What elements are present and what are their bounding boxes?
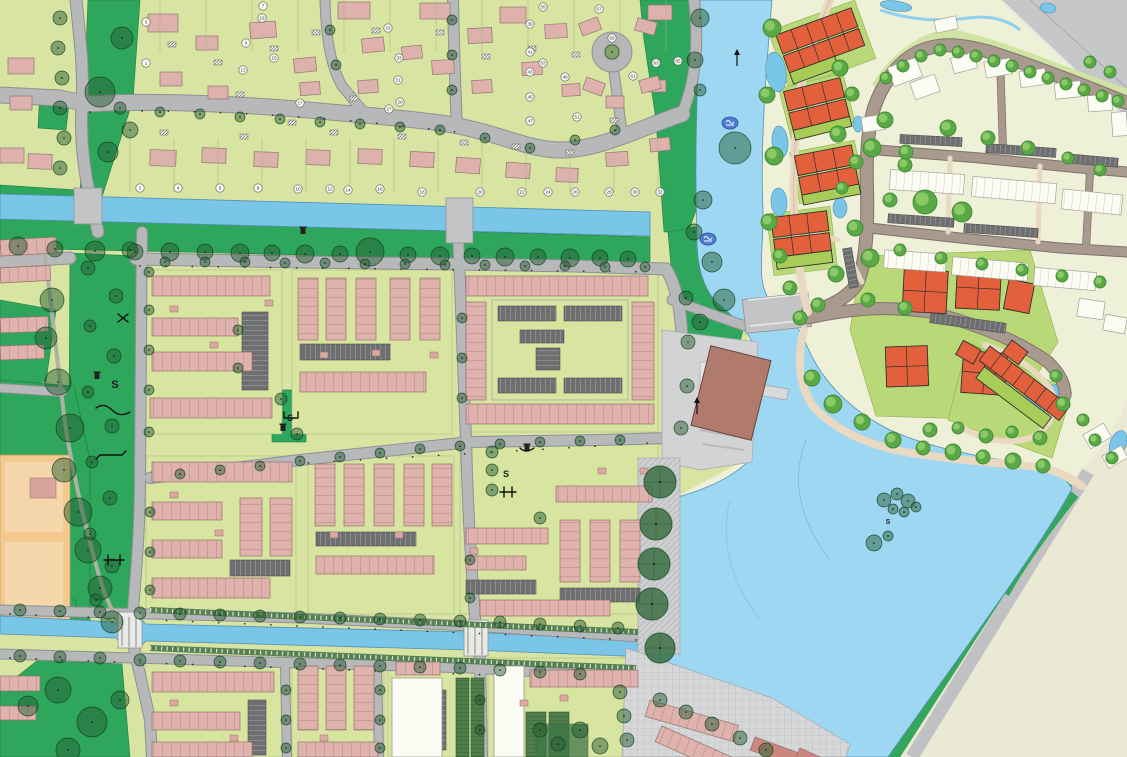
garden-shed <box>210 342 218 348</box>
svg-text:26: 26 <box>572 190 578 195</box>
tree-icon <box>375 685 385 695</box>
tree-icon <box>454 615 466 627</box>
garden-shed <box>170 492 178 498</box>
parking-marking <box>312 30 320 35</box>
tree-icon <box>457 393 467 403</box>
house <box>401 45 422 60</box>
parking-marking <box>610 118 618 123</box>
tree-icon <box>155 107 165 117</box>
svg-text:59: 59 <box>609 36 615 41</box>
tree-icon <box>82 386 94 398</box>
svg-text:33: 33 <box>396 56 402 61</box>
tree-icon <box>759 87 775 103</box>
tree-icon <box>894 244 906 256</box>
tree-icon <box>793 311 807 325</box>
tree-icon <box>53 161 67 175</box>
tree-icon <box>885 432 901 448</box>
tree-icon <box>988 55 1000 67</box>
plot-number: 53 <box>539 59 547 67</box>
tree-icon <box>534 512 546 524</box>
svg-text:9: 9 <box>245 41 248 46</box>
tree-icon <box>1042 72 1054 84</box>
tree-icon <box>360 259 370 269</box>
tree-icon <box>640 262 650 272</box>
plot-number: 17 <box>296 99 304 107</box>
tree-icon <box>686 224 702 240</box>
tree-icon <box>35 327 57 349</box>
tree-icon <box>414 614 426 626</box>
svg-text:16: 16 <box>377 187 383 192</box>
tree-icon <box>979 429 993 443</box>
tree-icon <box>694 84 706 96</box>
parking-marking <box>270 46 278 51</box>
tree-icon <box>679 705 693 719</box>
tree-icon <box>1016 264 1028 276</box>
plot-number: 10 <box>294 185 302 193</box>
plot-number: 12 <box>326 185 334 193</box>
tree-icon <box>315 117 325 127</box>
house <box>420 3 450 19</box>
tree-icon <box>494 616 506 628</box>
svg-text:32: 32 <box>657 190 663 195</box>
plot-number: 49 <box>561 73 569 81</box>
tree-icon <box>94 606 106 618</box>
plot-number: 2 <box>136 184 144 192</box>
garden-shed <box>320 735 328 741</box>
house <box>545 23 568 38</box>
house <box>456 157 481 174</box>
tree-icon <box>85 77 115 107</box>
tree-icon <box>215 465 225 475</box>
tree-icon <box>534 618 546 630</box>
tree-icon <box>494 664 506 676</box>
plot-number: 33 <box>395 54 403 62</box>
tree-icon <box>447 50 457 60</box>
svg-text:15: 15 <box>271 56 277 61</box>
parking-marking <box>350 96 358 101</box>
tree-icon <box>98 142 118 162</box>
tree-icon <box>861 293 875 307</box>
tree-icon <box>1024 66 1036 78</box>
tree-icon <box>1036 459 1050 473</box>
plot-number: 14 <box>344 186 352 194</box>
svg-text:12: 12 <box>327 187 333 192</box>
tree-icon <box>551 737 565 751</box>
svg-text:30: 30 <box>632 190 638 195</box>
plot-number: 65 <box>674 57 682 65</box>
parking-marking <box>398 134 406 139</box>
plot-number: 18 <box>418 188 426 196</box>
garden-shed <box>372 350 380 356</box>
svg-text:43: 43 <box>527 70 533 75</box>
house <box>606 96 624 108</box>
svg-text:61: 61 <box>630 74 636 79</box>
tree-icon <box>759 743 773 757</box>
house <box>28 154 53 170</box>
promenade-tree-icon <box>636 588 668 620</box>
svg-text:23: 23 <box>385 26 391 31</box>
tree-icon <box>294 611 306 623</box>
tree-icon <box>334 612 346 624</box>
tree-icon <box>480 133 490 143</box>
tree-icon <box>291 428 303 440</box>
plot-number: 22 <box>518 188 526 196</box>
tree-icon <box>713 289 735 311</box>
tree-icon <box>763 19 781 37</box>
plot-number: 23 <box>384 24 392 32</box>
tree-icon <box>592 738 608 754</box>
tree-icon <box>705 717 719 731</box>
masterplan-svg: SSSS319131571917233331292724681012141618… <box>0 0 1127 757</box>
bin-icon <box>300 227 307 235</box>
plot-number: 59 <box>608 34 616 42</box>
svg-text:14: 14 <box>345 188 351 193</box>
house <box>0 148 24 163</box>
tree-icon <box>281 743 291 753</box>
tree-icon <box>804 370 820 386</box>
tree-icon <box>877 112 893 128</box>
house <box>249 21 276 39</box>
tree-icon <box>832 60 848 76</box>
promenade-tree-icon <box>645 633 675 663</box>
svg-text:51: 51 <box>574 115 580 120</box>
tree-icon <box>134 607 146 619</box>
tree-icon <box>375 448 385 458</box>
tree-icon <box>1094 276 1106 288</box>
tree-icon <box>175 469 185 479</box>
svg-text:1: 1 <box>145 61 148 66</box>
tree-icon <box>414 661 426 673</box>
tree-icon <box>56 414 84 442</box>
house <box>293 57 316 73</box>
garden-shed <box>215 530 223 536</box>
tree-icon <box>84 320 96 332</box>
tree-icon <box>534 666 546 678</box>
tree-icon <box>849 155 863 169</box>
tree-icon <box>861 249 879 267</box>
plot-number: 51 <box>573 113 581 121</box>
tree-icon <box>45 677 71 703</box>
tree-icon <box>52 458 76 482</box>
tree-icon <box>940 120 956 136</box>
tree-icon <box>296 245 314 263</box>
tree-icon <box>970 50 982 62</box>
svg-text:24: 24 <box>545 190 551 195</box>
tree-icon <box>976 450 990 464</box>
plot-number: 47 <box>526 117 534 125</box>
tree-icon <box>1056 270 1068 282</box>
tree-icon <box>530 249 546 265</box>
tree-icon <box>47 241 63 257</box>
house <box>648 5 672 20</box>
tree-icon <box>674 421 688 435</box>
tree-icon <box>680 379 694 393</box>
plot-number: 1 <box>142 59 150 67</box>
tree-icon <box>613 685 627 699</box>
tree-icon <box>610 125 620 135</box>
svg-text:57: 57 <box>596 7 602 12</box>
tree-icon <box>233 325 243 335</box>
playground-label: S <box>886 519 891 526</box>
house <box>338 2 370 19</box>
tree-icon <box>495 439 505 449</box>
parking-marking <box>214 60 222 65</box>
svg-text:17: 17 <box>297 101 303 106</box>
house <box>208 86 228 99</box>
garden-shed <box>265 300 273 306</box>
plot-number: 13 <box>239 66 247 74</box>
tree-icon <box>145 585 155 595</box>
promenade-tree-icon <box>638 548 670 580</box>
svg-text:39: 39 <box>527 22 533 27</box>
tree-icon <box>103 491 117 505</box>
plot-number: 7 <box>259 2 267 10</box>
tree-icon <box>952 422 964 434</box>
tree-icon <box>847 220 863 236</box>
svg-text:20: 20 <box>477 190 483 195</box>
tree-icon <box>691 9 709 27</box>
garden-shed <box>170 306 178 312</box>
tree-icon <box>57 131 71 145</box>
tree-icon <box>200 257 210 267</box>
tree-icon <box>913 190 937 214</box>
tree-icon <box>898 158 912 172</box>
plot-number: 31 <box>394 76 402 84</box>
parking-marking <box>572 52 580 57</box>
house <box>432 59 455 74</box>
tree-icon <box>435 125 445 135</box>
plot-number: 39 <box>526 20 534 28</box>
svg-text:65: 65 <box>675 59 681 64</box>
tree-icon <box>765 147 783 165</box>
tree-icon <box>455 441 465 451</box>
house <box>160 72 182 86</box>
tree-icon <box>1112 95 1124 107</box>
tree-icon <box>830 126 846 142</box>
house <box>254 152 279 168</box>
playground-label: S <box>503 469 509 479</box>
svg-text:29: 29 <box>397 100 403 105</box>
tree-icon <box>235 112 245 122</box>
tree-icon <box>174 655 186 667</box>
tree-icon <box>111 691 129 709</box>
tree-icon <box>1021 141 1035 155</box>
tree-icon <box>134 654 146 666</box>
tree-icon <box>254 657 266 669</box>
tree-icon <box>334 659 346 671</box>
tree-icon <box>533 723 547 737</box>
tree-icon <box>447 85 457 95</box>
tree-icon <box>486 484 498 496</box>
house <box>358 79 379 93</box>
plot-number: 57 <box>595 5 603 13</box>
tree-icon <box>14 650 26 662</box>
house <box>202 148 227 164</box>
tree-icon <box>122 242 138 258</box>
tree-icon <box>916 441 930 455</box>
tree-icon <box>51 41 65 55</box>
svg-text:3: 3 <box>145 20 148 25</box>
tree-icon <box>620 733 634 747</box>
parking-marking <box>436 30 444 35</box>
tree-icon <box>863 139 881 157</box>
parking-marking <box>512 144 520 149</box>
tree-icon <box>281 715 291 725</box>
tree-icon <box>923 423 937 437</box>
tree-icon <box>55 71 69 85</box>
house <box>148 14 178 32</box>
tree-icon <box>465 555 475 565</box>
plot-number: 32 <box>656 188 664 196</box>
tree-icon <box>915 50 927 62</box>
parking-marking <box>288 120 296 125</box>
tree-icon <box>144 305 154 315</box>
garden-shed <box>520 700 528 706</box>
masterplan-map: SSSS319131571917233331292724681012141618… <box>0 0 1127 757</box>
plot-number: 26 <box>571 188 579 196</box>
tree-icon <box>109 289 123 303</box>
house <box>500 7 526 23</box>
house <box>506 162 531 179</box>
tree-icon <box>899 145 913 159</box>
svg-text:53: 53 <box>540 61 546 66</box>
tree-icon <box>457 313 467 323</box>
tree-icon <box>679 291 693 305</box>
tree-icon <box>40 288 64 312</box>
tree-icon <box>976 258 988 270</box>
tree-icon <box>1062 152 1074 164</box>
tree-icon <box>952 46 964 58</box>
tree-icon <box>880 72 892 84</box>
svg-text:4: 4 <box>177 186 180 191</box>
tree-icon <box>1094 164 1106 176</box>
plot-number: 9 <box>242 39 250 47</box>
tree-icon <box>86 456 98 468</box>
svg-text:28: 28 <box>606 190 612 195</box>
tree-icon <box>111 27 133 49</box>
tree-icon <box>94 652 106 664</box>
tree-icon <box>375 715 385 725</box>
plot-number: 28 <box>605 188 613 196</box>
tree-icon <box>761 214 777 230</box>
house <box>410 151 435 167</box>
tree-icon <box>1077 414 1089 426</box>
svg-text:2: 2 <box>139 186 142 191</box>
tree-icon <box>275 114 285 124</box>
tree-icon <box>898 301 912 315</box>
parking-marking <box>236 92 244 97</box>
plot-number: 30 <box>631 188 639 196</box>
tree-icon <box>114 102 126 114</box>
tree-icon <box>1005 453 1021 469</box>
tree-icon <box>1104 66 1116 78</box>
tree-icon <box>783 281 797 295</box>
plot-number: 16 <box>376 185 384 193</box>
house <box>562 84 581 97</box>
svg-text:55: 55 <box>540 5 546 10</box>
tree-icon <box>574 668 586 680</box>
tree-icon <box>773 249 787 263</box>
tree-icon <box>400 259 410 269</box>
tree-icon <box>90 594 102 606</box>
tree-icon <box>195 109 205 119</box>
tree-icon <box>14 604 26 616</box>
tree-icon <box>486 446 498 458</box>
tree-icon <box>854 414 870 430</box>
tree-icon <box>54 651 66 663</box>
tree-icon <box>144 267 154 277</box>
tree-icon <box>572 722 588 738</box>
tree-icon <box>911 502 921 512</box>
playground-label: S <box>287 413 293 423</box>
parking-marking <box>168 42 176 47</box>
tree-icon <box>883 193 897 207</box>
svg-text:8: 8 <box>257 186 260 191</box>
house <box>649 137 670 152</box>
tree-icon <box>575 436 585 446</box>
svg-text:7: 7 <box>262 4 265 9</box>
house <box>472 79 493 93</box>
plot-number: 45 <box>526 93 534 101</box>
tree-icon <box>1106 452 1118 464</box>
tree-icon <box>486 464 498 476</box>
tree-icon <box>145 507 155 517</box>
parking-marking <box>240 134 248 139</box>
svg-text:47: 47 <box>527 119 533 124</box>
tree-icon <box>375 743 385 753</box>
house <box>150 150 177 167</box>
tree-icon <box>694 191 712 209</box>
tree-icon <box>233 363 243 373</box>
svg-text:6: 6 <box>219 186 222 191</box>
house <box>361 37 384 53</box>
tree-icon <box>845 87 859 101</box>
plot-number: 3 <box>142 18 150 26</box>
garden-shed <box>230 735 238 741</box>
tree-icon <box>525 143 535 153</box>
svg-text:45: 45 <box>527 95 533 100</box>
tree-icon <box>355 119 365 129</box>
tree-icon <box>457 353 467 363</box>
tree-icon <box>1006 60 1018 72</box>
svg-text:63: 63 <box>653 61 659 66</box>
tree-icon <box>952 202 972 222</box>
tree-icon <box>1089 434 1101 446</box>
garden-shed <box>430 352 438 358</box>
tree-icon <box>374 660 386 672</box>
tree-icon <box>295 456 305 466</box>
tree-icon <box>240 257 250 267</box>
tree-icon <box>335 452 345 462</box>
tree-icon <box>620 251 636 267</box>
tree-icon <box>496 248 514 266</box>
parking-marking <box>160 130 168 135</box>
tree-icon <box>891 488 903 500</box>
promenade-tree-icon <box>640 508 672 540</box>
tree-icon <box>888 504 898 514</box>
tree-icon <box>415 444 425 454</box>
plot-number: 6 <box>216 184 224 192</box>
tree-icon <box>160 257 170 267</box>
bin-icon <box>94 372 101 380</box>
tree-icon <box>332 246 348 262</box>
parking-marking <box>460 140 468 145</box>
tree-icon <box>214 609 226 621</box>
tree-icon <box>560 261 570 271</box>
svg-text:41: 41 <box>527 50 533 55</box>
water-marker-icon <box>722 117 738 129</box>
tree-icon <box>883 531 893 541</box>
